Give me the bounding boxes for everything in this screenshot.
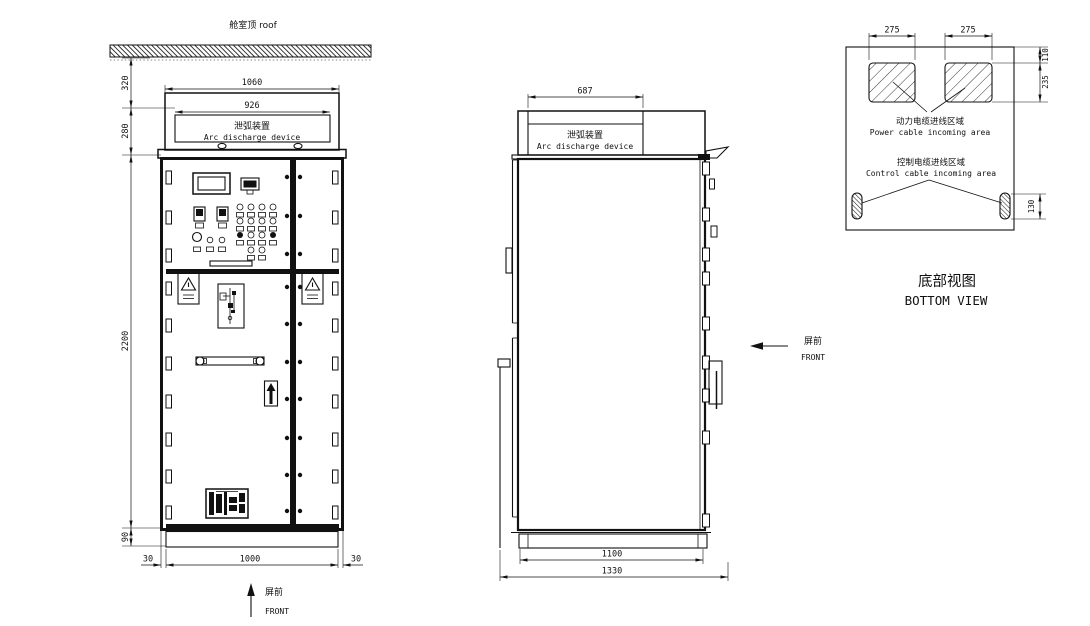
dim-roof-offset: 320 [121, 75, 131, 90]
right-hinges [333, 171, 339, 519]
front-view: 舱室顶 roof 320 280 2200 90 1060 [110, 19, 371, 617]
dim-cutout-left: 275 [884, 26, 899, 36]
warning-label-left [178, 273, 199, 304]
side-base: 1100 1330 [500, 533, 728, 582]
door-knob [498, 359, 510, 367]
dim-body-width: 1000 [240, 555, 260, 565]
left-hinges [166, 171, 172, 519]
dim-overall-width: 1060 [242, 78, 262, 88]
front-arc-label-en: Arc discharge device [204, 133, 301, 142]
warning-label-right [302, 273, 323, 304]
dim-overall-depth: 1330 [602, 567, 622, 577]
side-front-marker-cn: 屏前 [804, 335, 822, 347]
dim-arc-inner-width: 926 [244, 101, 259, 111]
front-base: 30 1000 30 [141, 531, 363, 568]
control-cable-label-en: Control cable incoming area [866, 169, 996, 178]
dim-left-foot: 30 [143, 555, 153, 565]
bottom-view: 275 275 110 235 动力电缆进线区域 Power cable inc… [846, 26, 1050, 309]
power-cable-label-en: Power cable incoming area [870, 128, 991, 137]
control-cable-label-cn: 控制电缆进线区域 [897, 157, 966, 168]
pushbutton-group [193, 233, 226, 252]
front-door-hinges [166, 171, 338, 519]
side-arc-device: 687 泄弧装置 Arc discharge device [512, 87, 728, 161]
control-switches [194, 207, 228, 228]
control-cable-callout: 控制电缆进线区域 Control cable incoming area [862, 157, 1002, 203]
bottom-view-title: 底部视图 BOTTOM VIEW [905, 273, 988, 308]
power-cable-cutouts [869, 63, 992, 102]
front-direction-marker-side: 屏前 FRONT [750, 335, 825, 362]
single-line-diagram-plate [218, 284, 244, 328]
meter-device [241, 178, 259, 194]
center-mullion [290, 159, 296, 529]
side-view: 687 泄弧装置 Arc discharge device [498, 87, 825, 582]
control-cable-slots [852, 193, 1010, 219]
front-arc-label-cn: 泄弧装置 [234, 120, 270, 132]
dim-body-height: 2200 [121, 331, 131, 351]
front-instrument-panel [193, 173, 277, 260]
front-direction-marker-bottom: 屏前 FRONT [247, 583, 289, 617]
roof-label: 舱室顶 roof [229, 19, 277, 31]
bottom-right-dims: 110 235 [992, 47, 1050, 102]
front-lower-doors [178, 273, 323, 518]
indicator-lamp-grid [237, 204, 277, 260]
nameplate [206, 489, 248, 518]
dim-arc-height: 280 [121, 123, 131, 138]
dim-right-foot: 30 [351, 555, 361, 565]
engineering-drawing-sheet: 舱室顶 roof 320 280 2200 90 1060 [0, 0, 1090, 626]
front-arc-device: 1060 926 泄弧装置 Arc discharge device [165, 78, 339, 150]
side-cabinet-body [498, 159, 705, 548]
door-clip [506, 248, 512, 273]
side-front-marker-en: FRONT [801, 353, 825, 362]
dim-cutout-depth: 235 [1041, 75, 1050, 89]
front-marker-en: FRONT [265, 607, 289, 616]
divider-plate [210, 261, 252, 266]
side-arc-label-en: Arc discharge device [537, 142, 634, 151]
front-cabinet-body [158, 150, 346, 530]
bottom-view-title-en: BOTTOM VIEW [905, 293, 988, 308]
bottom-top-dims: 275 275 [869, 26, 992, 61]
slot-dim: 130 [1011, 194, 1046, 219]
dim-arc-depth: 687 [577, 87, 592, 97]
bottom-view-title-cn: 底部视图 [918, 273, 976, 290]
power-cable-label-cn: 动力电缆进线区域 [896, 116, 965, 127]
dim-top-offset: 110 [1041, 48, 1050, 62]
side-arc-label-cn: 泄弧装置 [567, 129, 603, 141]
drawing-canvas: 舱室顶 roof 320 280 2200 90 1060 [0, 0, 1090, 626]
operating-lever [265, 381, 278, 406]
handle-bar [196, 357, 264, 365]
display-screen [193, 173, 230, 194]
dim-slot-length: 130 [1027, 199, 1036, 213]
dim-base-height: 90 [121, 532, 131, 542]
front-marker-cn: 屏前 [265, 586, 283, 598]
dim-base-depth: 1100 [602, 550, 622, 560]
dim-cutout-right: 275 [960, 26, 975, 36]
